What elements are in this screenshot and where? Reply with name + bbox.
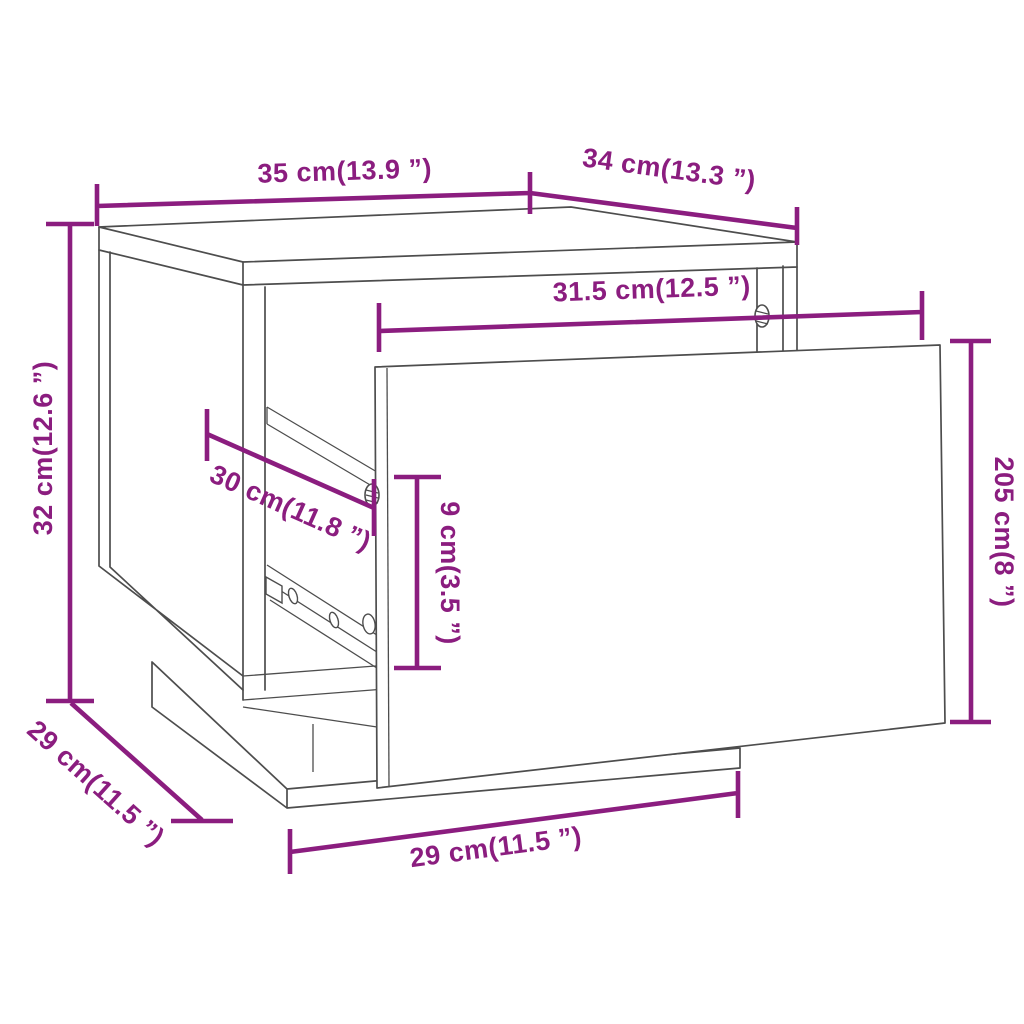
- dim-top-depth-label: 34 cm(13.3 ”): [581, 143, 758, 196]
- runner-slot: [287, 587, 300, 605]
- dim-base-width: 29 cm(11.5 ”): [290, 771, 738, 874]
- dim-drawer-front-height: 205 cm(8 ”): [950, 341, 1019, 722]
- runner-slot: [328, 611, 341, 629]
- drawer-runner-upper: [267, 407, 377, 489]
- dim-inner-width: 31.5 cm(12.5 ”): [379, 271, 922, 352]
- runner-bracket: [266, 577, 282, 603]
- dim-base-width-label: 29 cm(11.5 ”): [408, 821, 584, 873]
- dim-drawer-front-height-label: 205 cm(8 ”): [989, 456, 1019, 607]
- dim-height-label: 32 cm(12.6 ”): [28, 361, 58, 536]
- dim-top-width: 35 cm(13.9 ”): [97, 153, 530, 226]
- dim-base-depth: 29 cm(11.5 ”): [21, 703, 233, 852]
- dim-drawer-front-height-line: [950, 341, 991, 722]
- runner-slot: [361, 613, 376, 635]
- dim-drawer-gap-height-label: 9 cm(3.5 ”): [435, 501, 465, 645]
- drawer-bottom-lines: [243, 707, 377, 772]
- dim-inner-width-label: 31.5 cm(12.5 ”): [552, 271, 751, 308]
- dim-top-depth: 34 cm(13.3 ”): [530, 143, 797, 245]
- dim-runner-depth: 30 cm(11.8 ”): [205, 409, 375, 557]
- dimension-diagram: 35 cm(13.9 ”) 34 cm(13.3 ”) 31.5 cm(12.5…: [0, 0, 1024, 1024]
- dim-height: 32 cm(12.6 ”): [28, 224, 94, 701]
- dim-base-depth-label: 29 cm(11.5 ”): [21, 714, 170, 852]
- dim-top-depth-line: [530, 193, 797, 245]
- nightstand-line-drawing: 35 cm(13.9 ”) 34 cm(13.3 ”) 31.5 cm(12.5…: [0, 0, 1024, 1024]
- dim-top-width-label: 35 cm(13.9 ”): [257, 153, 432, 188]
